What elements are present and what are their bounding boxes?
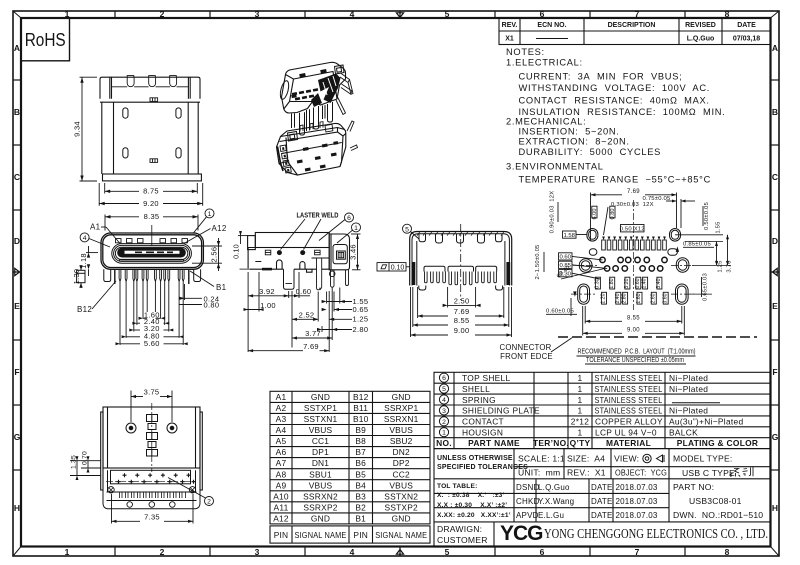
svg-text:4: 4 (442, 397, 446, 404)
svg-text:VBUS: VBUS (309, 425, 333, 435)
svg-text:1.ELECTRICAL:: 1.ELECTRICAL: (506, 58, 583, 68)
svg-text:PART NAME: PART NAME (468, 438, 520, 448)
svg-text:L.Q.Guo: L.Q.Guo (538, 483, 570, 492)
svg-text:A: A (772, 43, 778, 53)
svg-text:2.MECHANICAL:: 2.MECHANICAL: (506, 117, 586, 127)
svg-text:0.60: 0.60 (559, 255, 571, 261)
svg-text:4: 4 (350, 547, 355, 557)
svg-text:0.70: 0.70 (82, 451, 89, 465)
svg-text:Au(3u”)+Ni−Plated: Au(3u”)+Ni−Plated (669, 417, 744, 427)
svg-text:B12: B12 (77, 305, 92, 314)
svg-text:DATE: DATE (591, 497, 613, 506)
svg-text:0.80: 0.80 (204, 300, 220, 309)
svg-text:1.40: 1.40 (642, 278, 648, 288)
svg-text:3: 3 (255, 9, 260, 19)
svg-text:1.25: 1.25 (353, 315, 369, 324)
svg-text:LCP UL 94 V−0: LCP UL 94 V−0 (595, 428, 657, 438)
svg-text:D: D (772, 236, 778, 246)
svg-text:3.75: 3.75 (144, 388, 160, 397)
svg-text:DESCRIPTION: DESCRIPTION (608, 22, 656, 29)
svg-text:B3: B3 (355, 491, 366, 501)
svg-text:GND: GND (311, 514, 330, 524)
svg-text:B: B (772, 107, 778, 117)
svg-text:RoHS: RoHS (25, 30, 66, 50)
svg-text:1: 1 (578, 384, 583, 394)
svg-text:B: B (14, 107, 20, 117)
svg-text:1: 1 (208, 211, 212, 218)
svg-text:1: 1 (442, 430, 446, 437)
svg-text:3.40: 3.40 (656, 278, 662, 288)
svg-text:A2: A2 (276, 403, 287, 413)
svg-text:D: D (14, 236, 20, 246)
svg-text:A12: A12 (212, 224, 227, 233)
svg-text:2*12: 2*12 (571, 417, 589, 427)
svg-text:2018.07.03: 2018.07.03 (616, 497, 658, 506)
svg-text:BALCK: BALCK (669, 428, 698, 438)
svg-text:0.85±0.05: 0.85±0.05 (683, 241, 711, 247)
svg-text:3.60: 3.60 (662, 293, 668, 303)
svg-text:GND: GND (392, 392, 411, 402)
svg-text:B9: B9 (355, 425, 366, 435)
svg-text:1: 1 (578, 395, 583, 405)
svg-text:B4: B4 (355, 480, 366, 490)
svg-text:STAINLESS STEEL: STAINLESS STEEL (595, 373, 663, 383)
svg-text:PLATING & COLOR: PLATING & COLOR (677, 438, 759, 448)
svg-text:X.X : ±0.30 X.X’ :±2’: X.X : ±0.30 X.X’ :±2’ (437, 502, 507, 509)
svg-text:Ni−Plated: Ni−Plated (669, 373, 708, 383)
svg-text:A8: A8 (276, 469, 287, 479)
svg-text:0.65±0.03: 0.65±0.03 (703, 272, 709, 300)
svg-text:0.10: 0.10 (232, 244, 241, 259)
svg-text:STAINLESS STEEL: STAINLESS STEEL (595, 395, 663, 405)
svg-text:6.00: 6.00 (592, 209, 598, 220)
svg-text:8: 8 (725, 547, 730, 557)
svg-text:L.Q.Guo: L.Q.Guo (687, 36, 715, 43)
svg-text:DSND: DSND (516, 483, 539, 492)
svg-text:SSRXN1: SSRXN1 (384, 414, 419, 424)
svg-text:Y.X.Wang: Y.X.Wang (538, 497, 574, 506)
svg-text:0.50±0.05: 0.50±0.05 (704, 201, 710, 229)
svg-text:PART NO:: PART NO: (673, 482, 714, 492)
svg-text:B8: B8 (355, 436, 366, 446)
svg-text:Ni−Plated: Ni−Plated (669, 384, 708, 394)
svg-text:TOP SHELL: TOP SHELL (462, 373, 511, 383)
svg-text:YONG CHENGGONG ELECTRONICS CO.: YONG CHENGGONG ELECTRONICS CO. , LTD. (544, 526, 768, 541)
svg-text:2.50: 2.50 (454, 297, 470, 306)
svg-text:LASTER WELD: LASTER WELD (297, 213, 339, 220)
svg-text:8.55: 8.55 (454, 316, 470, 325)
svg-text:3: 3 (255, 547, 260, 557)
svg-text:0.60: 0.60 (635, 278, 641, 288)
svg-text:E: E (14, 301, 20, 311)
svg-text:NOTES:: NOTES: (506, 47, 545, 57)
svg-text:SIGNAL NAME: SIGNAL NAME (295, 530, 347, 540)
svg-text:DN2: DN2 (393, 447, 410, 457)
svg-text:A1: A1 (276, 392, 287, 402)
svg-text:A: A (14, 43, 20, 53)
svg-text:1.55: 1.55 (716, 221, 722, 234)
svg-text:STAINLESS STEEL: STAINLESS STEEL (595, 384, 663, 394)
svg-text:SCALE: 1:1: SCALE: 1:1 (518, 454, 565, 464)
svg-text:0.10: 0.10 (391, 265, 405, 272)
svg-text:0.30: 0.30 (595, 278, 601, 288)
svg-text:USB3C08-01: USB3C08-01 (689, 496, 742, 506)
svg-text:2018.07.03: 2018.07.03 (616, 483, 658, 492)
svg-text:8.55: 8.55 (627, 316, 640, 322)
svg-text:7: 7 (635, 547, 640, 557)
svg-text:SSRXP1: SSRXP1 (384, 403, 418, 413)
svg-text:1: 1 (65, 547, 70, 557)
svg-text:2: 2 (160, 547, 165, 557)
svg-text:1.20: 1.20 (601, 293, 607, 303)
svg-text:TOLERANCE UNSPECIFIED ±0.05mm: TOLERANCE UNSPECIFIED ±0.05mm (586, 355, 684, 364)
svg-text:07/03,18: 07/03,18 (733, 36, 760, 43)
svg-text:3.92: 3.92 (259, 287, 275, 296)
svg-text:0.60: 0.60 (296, 287, 312, 296)
svg-text:CURRENT: 3A MIN FOR VBUS;: CURRENT: 3A MIN FOR VBUS; (519, 72, 683, 82)
svg-text:SHIELDING PLATE: SHIELDING PLATE (462, 406, 540, 416)
svg-text:2.56: 2.56 (210, 247, 219, 263)
svg-text:7.69: 7.69 (454, 307, 470, 316)
svg-text:VBUS: VBUS (389, 425, 413, 435)
svg-text:7.35: 7.35 (144, 513, 160, 522)
svg-text:E.L.Gu: E.L.Gu (538, 511, 564, 520)
svg-text:8.75: 8.75 (143, 187, 159, 196)
svg-text:GND: GND (311, 392, 330, 402)
svg-text:4: 4 (350, 9, 355, 19)
svg-text:FRONT EDCE: FRONT EDCE (500, 352, 553, 361)
svg-text:1.60: 1.60 (636, 293, 642, 303)
svg-text:0.60±0.05: 0.60±0.05 (546, 308, 574, 314)
svg-text:A5: A5 (276, 436, 287, 446)
svg-text:CC2: CC2 (393, 469, 410, 479)
svg-text:B1: B1 (216, 283, 227, 292)
svg-text:DN1: DN1 (312, 458, 329, 468)
svg-text:2−1.50±0.05: 2−1.50±0.05 (535, 244, 541, 280)
svg-text:B11: B11 (353, 403, 368, 413)
svg-text:F: F (14, 367, 19, 377)
svg-text:2.40: 2.40 (615, 293, 621, 303)
svg-text:STAINLESS STEEL: STAINLESS STEEL (595, 406, 663, 416)
svg-text:CONNECTOR: CONNECTOR (500, 343, 552, 352)
svg-text:COPPER ALLOY: COPPER ALLOY (595, 417, 663, 427)
svg-text:TOL TABLE:: TOL TABLE: (437, 483, 477, 490)
svg-text:SSTXN1: SSTXN1 (304, 414, 338, 424)
svg-text:CC1: CC1 (312, 436, 329, 446)
svg-text:A11: A11 (274, 502, 289, 512)
svg-text:2018.07.03: 2018.07.03 (616, 511, 658, 520)
svg-text:2.52: 2.52 (299, 311, 315, 320)
svg-text:6: 6 (347, 215, 351, 222)
svg-text:2.80: 2.80 (353, 325, 369, 334)
svg-text:1: 1 (578, 373, 583, 383)
svg-text:SBU1: SBU1 (309, 469, 332, 479)
svg-text:REV.: X1: REV.: X1 (567, 468, 606, 478)
svg-text:SHELL: SHELL (462, 384, 490, 394)
svg-text:DP1: DP1 (312, 447, 329, 457)
svg-text:5: 5 (405, 226, 409, 233)
svg-text:1.30: 1.30 (72, 269, 81, 285)
svg-text:DATE: DATE (737, 22, 756, 29)
svg-text:SBU2: SBU2 (390, 436, 413, 446)
svg-text:3.20: 3.20 (624, 278, 630, 288)
svg-text:GND: GND (392, 514, 411, 524)
svg-text:A6: A6 (276, 447, 287, 457)
svg-text:A3: A3 (276, 414, 287, 424)
svg-text:C: C (14, 172, 20, 182)
svg-text:VBUS: VBUS (309, 480, 333, 490)
svg-text:SSRXP2: SSRXP2 (303, 502, 337, 512)
svg-text:SPRING: SPRING (462, 395, 496, 405)
svg-text:6: 6 (540, 547, 545, 557)
svg-text:2.60: 2.60 (650, 293, 656, 303)
svg-text:B7: B7 (355, 447, 366, 457)
svg-text:A4: A4 (276, 425, 287, 435)
svg-text:REV.: REV. (502, 22, 518, 29)
svg-text:1.80: 1.80 (609, 278, 615, 288)
svg-text:B6: B6 (355, 458, 366, 468)
svg-text:E: E (772, 301, 778, 311)
svg-text:CONTACT RESISTANCE: 40mΩ MA: CONTACT RESISTANCE: 40mΩ MAX. (519, 96, 710, 106)
svg-text:YCG: YCG (500, 522, 543, 545)
svg-text:0.30±0.03 12X: 0.30±0.03 12X (611, 202, 654, 208)
svg-text:F: F (772, 367, 777, 377)
svg-text:3: 3 (442, 408, 446, 415)
svg-text:TER’NO.: TER’NO. (533, 438, 569, 448)
svg-text:INSULATION RESISTANCE: 100MΩ: INSULATION RESISTANCE: 100MΩ MIN. (519, 107, 726, 117)
svg-text:MODEL TYPE:: MODEL TYPE: (673, 454, 733, 464)
svg-text:9.20: 9.20 (143, 199, 159, 208)
svg-text:C: C (772, 172, 778, 182)
svg-text:SSTXP2: SSTXP2 (385, 502, 418, 512)
svg-text:SSTXN2: SSTXN2 (384, 491, 418, 501)
svg-text:H: H (772, 503, 778, 513)
svg-text:UNIT: mm: UNIT: mm (518, 468, 560, 478)
svg-text:5: 5 (445, 547, 450, 557)
svg-text:3.76: 3.76 (727, 260, 733, 273)
svg-text:7.69: 7.69 (303, 342, 319, 351)
svg-text:1.25: 1.25 (718, 260, 724, 273)
svg-text:3.46: 3.46 (349, 244, 358, 260)
svg-text:1.58: 1.58 (563, 233, 575, 239)
svg-text:REVISED: REVISED (685, 22, 716, 29)
svg-text:3.ENVIRONMENTAL: 3.ENVIRONMENTAL (506, 162, 604, 172)
svg-text:0.65: 0.65 (353, 305, 369, 314)
svg-text:B12: B12 (353, 392, 369, 402)
svg-text:INSERTION: 5~20N.: INSERTION: 5~20N. (519, 127, 620, 137)
svg-text:9.34: 9.34 (73, 121, 82, 137)
svg-text:1.35: 1.35 (71, 455, 78, 469)
svg-text:OBJECT: YCG: OBJECT: YCG (615, 468, 667, 478)
svg-text:HOUSIGN: HOUSIGN (462, 428, 503, 438)
svg-text:VBUS: VBUS (389, 480, 413, 490)
svg-text:5: 5 (445, 9, 450, 19)
svg-text:A12: A12 (273, 514, 289, 524)
svg-text:4: 4 (83, 235, 87, 242)
svg-text:2.80: 2.80 (622, 293, 628, 303)
svg-text:DRAWIGN:: DRAWIGN: (437, 524, 482, 534)
svg-text:PIN: PIN (353, 530, 368, 540)
svg-text:APVD: APVD (516, 511, 539, 520)
svg-text:A7: A7 (276, 458, 287, 468)
svg-text:A10: A10 (273, 491, 289, 501)
svg-text:9.00: 9.00 (454, 326, 470, 335)
svg-text:5: 5 (442, 386, 446, 393)
svg-text:G: G (14, 432, 21, 442)
svg-text:VIEW:: VIEW: (614, 454, 639, 464)
svg-text:7.69: 7.69 (627, 189, 640, 195)
svg-text:SIZE: A4: SIZE: A4 (567, 454, 605, 464)
svg-text:MATERIAL: MATERIAL (606, 438, 651, 448)
svg-text:B5: B5 (355, 469, 366, 479)
svg-text:PIN: PIN (274, 530, 289, 540)
svg-text:DURABILITY: 5000 CYCLES: DURABILITY: 5000 CYCLES (519, 147, 662, 157)
svg-text:DATE: DATE (591, 483, 613, 492)
svg-text:SSRXN2: SSRXN2 (303, 491, 338, 501)
svg-text:EXTRACTION: 8~20N.: EXTRACTION: 8~20N. (519, 137, 630, 147)
svg-text:X.XX: ±0.20 X.XX’:±1’: X.XX: ±0.20 X.XX’:±1’ (437, 512, 511, 519)
svg-text:SPECIFIED TOLERANCES: SPECIFIED TOLERANCES (437, 464, 528, 471)
svg-text:G: G (772, 432, 779, 442)
svg-text:0.80: 0.80 (610, 209, 616, 220)
svg-text:1: 1 (578, 428, 583, 438)
svg-text:6: 6 (442, 375, 446, 382)
svg-text:1: 1 (354, 225, 358, 232)
svg-text:Ni−Plated: Ni−Plated (669, 406, 708, 416)
svg-text:B2: B2 (355, 502, 366, 512)
svg-text:B10: B10 (353, 414, 369, 424)
svg-text:B1: B1 (355, 514, 366, 524)
svg-text:X1: X1 (505, 36, 514, 43)
svg-text:2: 2 (207, 499, 211, 506)
svg-text:DWN. NO.:RD01−510: DWN. NO.:RD01−510 (673, 510, 763, 520)
svg-text:2: 2 (160, 9, 165, 19)
svg-text:CONTACT: CONTACT (462, 417, 504, 427)
svg-text:2: 2 (442, 419, 446, 426)
svg-text:SSTXP1: SSTXP1 (304, 403, 337, 413)
svg-text:1.00: 1.00 (260, 301, 276, 310)
svg-text:Q’TY: Q’TY (570, 438, 591, 448)
svg-text:0.90±0.03 12X: 0.90±0.03 12X (550, 191, 556, 234)
svg-text:WITHSTANDING VOLTAGE: 100V: WITHSTANDING VOLTAGE: 100V AC. (519, 83, 711, 93)
svg-text:8.35: 8.35 (144, 212, 160, 221)
svg-text:X. : ±0.38 X.’ :±3’: X. : ±0.38 X.’ :±3’ (437, 492, 505, 499)
svg-text:CHKD: CHKD (516, 497, 539, 506)
svg-text:UNLESS OTHERWISE: UNLESS OTHERWISE (437, 455, 513, 462)
svg-text:DATE: DATE (591, 511, 613, 520)
svg-text:NO.: NO. (436, 438, 452, 448)
svg-text:0.50 X12: 0.50 X12 (620, 226, 645, 232)
svg-text:5.60: 5.60 (144, 339, 160, 348)
svg-text:ECN NO.: ECN NO. (537, 22, 566, 29)
svg-text:SIGNAL NAME: SIGNAL NAME (375, 530, 427, 540)
svg-text:1: 1 (578, 406, 583, 416)
svg-text:9.00: 9.00 (627, 328, 640, 334)
svg-text:A1: A1 (90, 223, 101, 232)
svg-text:A9: A9 (276, 480, 287, 490)
svg-text:TEMPERATURE RANGE −55°C~+85°: TEMPERATURE RANGE −55°C~+85°C (519, 175, 712, 185)
svg-text:H: H (14, 503, 20, 513)
svg-text:DP2: DP2 (393, 458, 410, 468)
svg-text:CUSTOMER: CUSTOMER (437, 535, 488, 545)
svg-text:USB C TYPE: USB C TYPE (682, 468, 735, 478)
